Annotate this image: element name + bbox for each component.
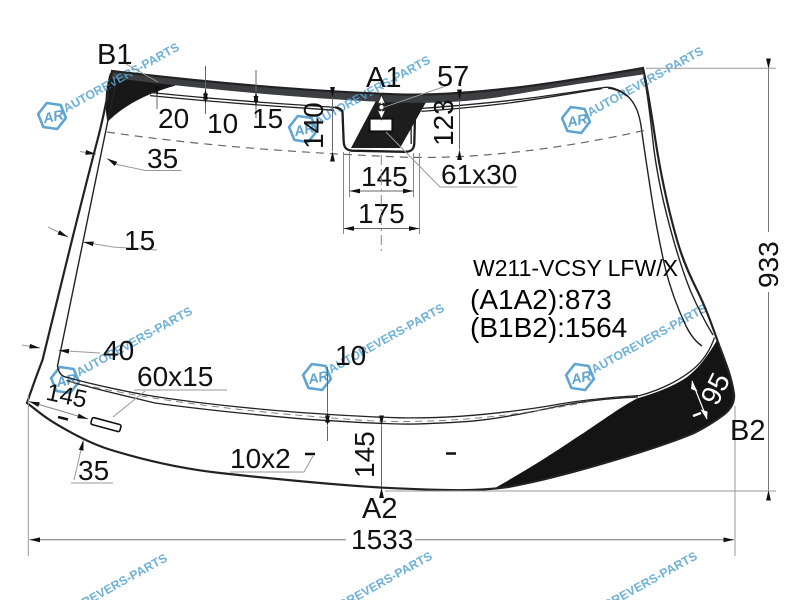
svg-text:10: 10: [335, 340, 366, 371]
svg-text:140: 140: [298, 102, 329, 149]
svg-text:B1: B1: [97, 39, 132, 71]
svg-text:W211-VCSY LFW/X: W211-VCSY LFW/X: [473, 255, 678, 281]
svg-text:145: 145: [361, 161, 408, 192]
svg-text:15: 15: [252, 103, 283, 134]
svg-text:123: 123: [428, 99, 459, 146]
svg-text:A2: A2: [362, 493, 397, 525]
svg-text:57: 57: [437, 61, 469, 93]
svg-text:A1: A1: [366, 62, 401, 94]
svg-text:15: 15: [124, 225, 155, 256]
svg-text:35: 35: [78, 455, 109, 486]
svg-text:10x2: 10x2: [230, 443, 291, 474]
svg-text:60x15: 60x15: [137, 361, 213, 392]
svg-text:20: 20: [158, 103, 189, 134]
svg-text:933: 933: [753, 241, 784, 288]
svg-text:61x30: 61x30: [441, 159, 517, 190]
svg-text:(A1A2):873: (A1A2):873: [470, 284, 612, 315]
svg-text:40: 40: [103, 335, 134, 366]
svg-text:10: 10: [207, 108, 238, 139]
svg-text:(B1B2):1564: (B1B2):1564: [470, 312, 627, 343]
svg-text:35: 35: [147, 143, 178, 174]
svg-text:145: 145: [349, 431, 380, 478]
svg-text:1533: 1533: [351, 524, 413, 555]
svg-text:B2: B2: [730, 415, 765, 447]
